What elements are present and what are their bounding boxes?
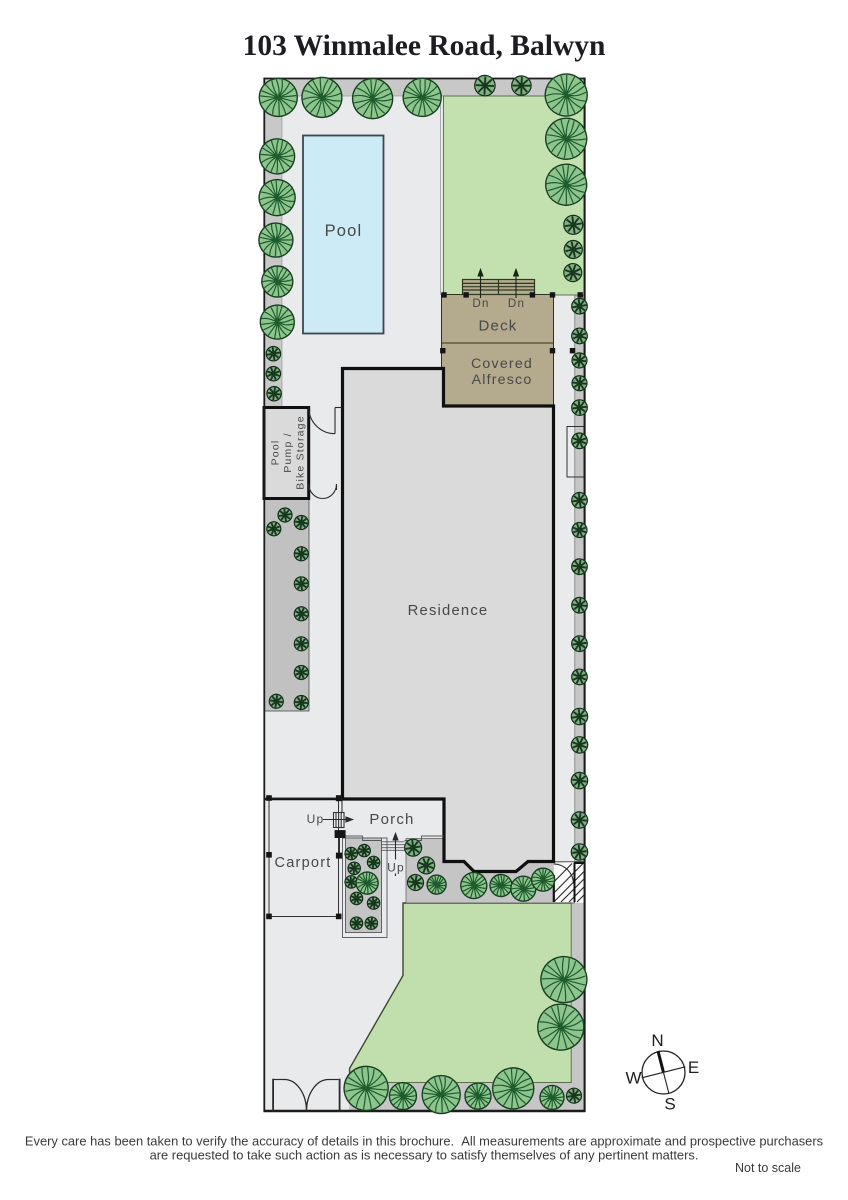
svg-text:S: S: [664, 1095, 675, 1114]
svg-text:Alfresco: Alfresco: [472, 372, 533, 388]
svg-text:Pool: Pool: [270, 440, 282, 466]
svg-text:are requested to take such act: are requested to take such action as is …: [150, 1148, 699, 1163]
svg-text:Carport: Carport: [274, 855, 331, 871]
svg-text:Pump /: Pump /: [282, 432, 294, 472]
svg-text:103 Winmalee Road, Balwyn: 103 Winmalee Road, Balwyn: [243, 30, 606, 62]
svg-text:Not to scale: Not to scale: [735, 1161, 801, 1175]
svg-text:Dn: Dn: [472, 297, 489, 310]
svg-text:Up: Up: [307, 812, 325, 826]
svg-text:W: W: [625, 1069, 641, 1088]
svg-text:Deck: Deck: [479, 318, 518, 335]
svg-text:Dn: Dn: [508, 297, 525, 310]
svg-text:N: N: [651, 1031, 663, 1050]
svg-text:Porch: Porch: [369, 811, 414, 828]
svg-text:Every care has been taken to v: Every care has been taken to verify the …: [25, 1134, 823, 1149]
svg-text:Residence: Residence: [408, 603, 489, 619]
svg-text:Pool: Pool: [325, 222, 363, 240]
svg-text:Bike Storage: Bike Storage: [295, 415, 307, 490]
svg-text:Up: Up: [387, 861, 405, 875]
svg-text:E: E: [688, 1058, 699, 1077]
svg-text:Covered: Covered: [471, 356, 533, 372]
